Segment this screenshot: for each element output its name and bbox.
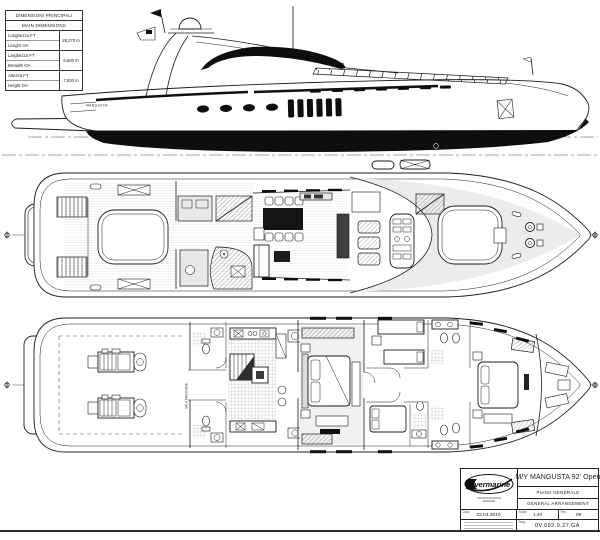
vip-tv xyxy=(524,374,529,390)
nightstand xyxy=(372,336,381,345)
headboard xyxy=(302,354,308,408)
dryer xyxy=(288,428,302,438)
cleat-starboard xyxy=(90,285,101,290)
mast-flag xyxy=(150,9,161,17)
drawing-number-label: Dwg. xyxy=(519,521,526,524)
salon-sideboard xyxy=(300,193,332,200)
radar-arch xyxy=(137,9,214,96)
liferaft-locker-port xyxy=(118,185,150,195)
coffee-table xyxy=(274,251,290,262)
bow-side-door xyxy=(497,99,514,118)
revision-cell: Rev. 09 xyxy=(559,510,598,519)
master-tv xyxy=(320,429,340,434)
bidet xyxy=(453,333,460,343)
toilet xyxy=(441,333,448,343)
companionway-stairs xyxy=(416,194,444,214)
drawing-number-cell: Dwg. 0V.092.0.27.GA xyxy=(517,520,598,530)
height-value: 7,530 m xyxy=(60,71,82,90)
length-label-it: Lunghezza FT xyxy=(6,31,59,41)
deck-hatch xyxy=(372,161,394,169)
dining-table xyxy=(263,208,303,230)
galley-sink-2 xyxy=(278,398,286,406)
date-label: Data xyxy=(463,511,470,514)
cockpit-counter xyxy=(180,250,208,286)
centerline-mark-aft xyxy=(5,232,9,239)
helm-seats xyxy=(358,221,380,265)
hull-brand-label: MANGUSTA xyxy=(86,104,108,108)
staircase xyxy=(230,354,254,380)
height-label-it: Altezza FT xyxy=(6,71,59,81)
height-label-en: Height OA xyxy=(6,81,59,90)
table-title-italian: DIMENSIONI PRINCIPALI xyxy=(6,11,82,21)
title-block: overmarine M/Y MANGUSTA 92' Open PIANO G… xyxy=(460,468,599,531)
scale-cell: Scala 1:40 xyxy=(517,510,559,519)
main-deck-view xyxy=(5,160,597,297)
shower xyxy=(430,350,444,364)
master-bed xyxy=(308,356,350,406)
lower-deck-view: SALA MACCHINE xyxy=(5,317,597,453)
logo-text: overmarine xyxy=(470,480,510,489)
foredeck-sunpad xyxy=(438,206,502,264)
revision-value: 09 xyxy=(576,511,581,519)
beam-label-en: Breadth OA xyxy=(6,61,59,70)
crew-locker xyxy=(558,380,570,390)
toilet xyxy=(203,344,210,354)
galley-counter-port xyxy=(230,328,276,339)
galley-counter-starboard xyxy=(230,421,276,432)
scale-label: Scala xyxy=(519,511,527,514)
drawing-number-value: 0V.092.0.27.GA xyxy=(535,521,580,530)
liferaft-locker-starboard xyxy=(118,279,150,289)
windshield-glass xyxy=(201,47,346,70)
toilet xyxy=(203,416,210,426)
signal-mast xyxy=(161,14,165,33)
helm-cabinet xyxy=(352,192,380,212)
guest-bed-3 xyxy=(370,406,406,432)
confidentiality-note xyxy=(461,520,517,530)
vip-bed xyxy=(478,362,518,408)
table-row: Altezza FT Height OA 7,530 m xyxy=(6,71,82,90)
shower xyxy=(430,406,444,420)
stern-stairs-port xyxy=(57,197,87,217)
overmarine-logo-icon: overmarine xyxy=(463,472,515,506)
engine-room-label: SALA MACCHINE xyxy=(185,383,189,409)
scale-value: 1:40 xyxy=(533,511,542,519)
toilet xyxy=(441,425,448,435)
foredeck-hatch xyxy=(494,228,506,243)
galley-island xyxy=(252,367,268,383)
washer xyxy=(288,330,302,342)
profile-view: MANGUSTA xyxy=(2,6,598,155)
master-wardrobe-2 xyxy=(302,434,332,444)
drawing-title-english: GENERAL ARRANGEMENT xyxy=(518,499,598,510)
radar-dome xyxy=(179,18,201,29)
sheet-border-bottom xyxy=(0,530,600,532)
aft-sunpad xyxy=(98,210,168,264)
beam-label-it: Larghezza FT xyxy=(6,51,59,61)
table-row: Lunghezza FT Lenght OA 28,270 m xyxy=(6,31,82,51)
tv-cabinet xyxy=(337,214,349,258)
nightstand xyxy=(473,410,482,418)
length-value: 28,270 m xyxy=(60,31,82,50)
main-dimensions-table: DIMENSIONI PRINCIPALI MAIN DIMENSIONS Lu… xyxy=(5,10,83,91)
centerline-mark-aft xyxy=(5,382,9,389)
bow-flag-pole xyxy=(523,57,533,75)
beam-value: 6,600 m xyxy=(60,51,82,70)
master-sofa xyxy=(316,416,348,426)
drawing-title-italian: PIANO GENERALE xyxy=(518,487,598,499)
horn xyxy=(146,30,152,34)
table-title-english: MAIN DIMENSIONS xyxy=(6,21,82,31)
cleat-port xyxy=(90,184,101,189)
cockpit-cabinet xyxy=(178,196,212,221)
toilet xyxy=(417,402,424,411)
nightstand xyxy=(473,352,482,360)
nightstand xyxy=(301,344,310,352)
length-label-en: Lenght OA xyxy=(6,41,59,50)
vip-sofa xyxy=(484,414,512,423)
cockpit-stairs xyxy=(216,196,252,221)
date-cell: Data 02.04.2010 xyxy=(461,510,517,519)
shower xyxy=(412,414,426,428)
date-value: 02.04.2010 xyxy=(476,511,500,519)
nightstand xyxy=(301,410,310,418)
liferaft-hatch xyxy=(400,160,430,169)
shipyard-logo: overmarine xyxy=(461,469,518,509)
stern-stairs-starboard xyxy=(57,257,87,277)
helm-console xyxy=(390,214,414,268)
table-row: Larghezza FT Breadth OA 6,600 m xyxy=(6,51,82,71)
general-arrangement-drawing: MANGUSTA xyxy=(0,0,600,540)
master-wardrobe xyxy=(302,328,354,338)
master-dresser xyxy=(352,362,360,406)
galley-sink-1 xyxy=(278,386,286,394)
revision-label: Rev. xyxy=(561,511,567,514)
bidet xyxy=(453,423,460,433)
project-name: M/Y MANGUSTA 92' Open xyxy=(518,469,598,487)
